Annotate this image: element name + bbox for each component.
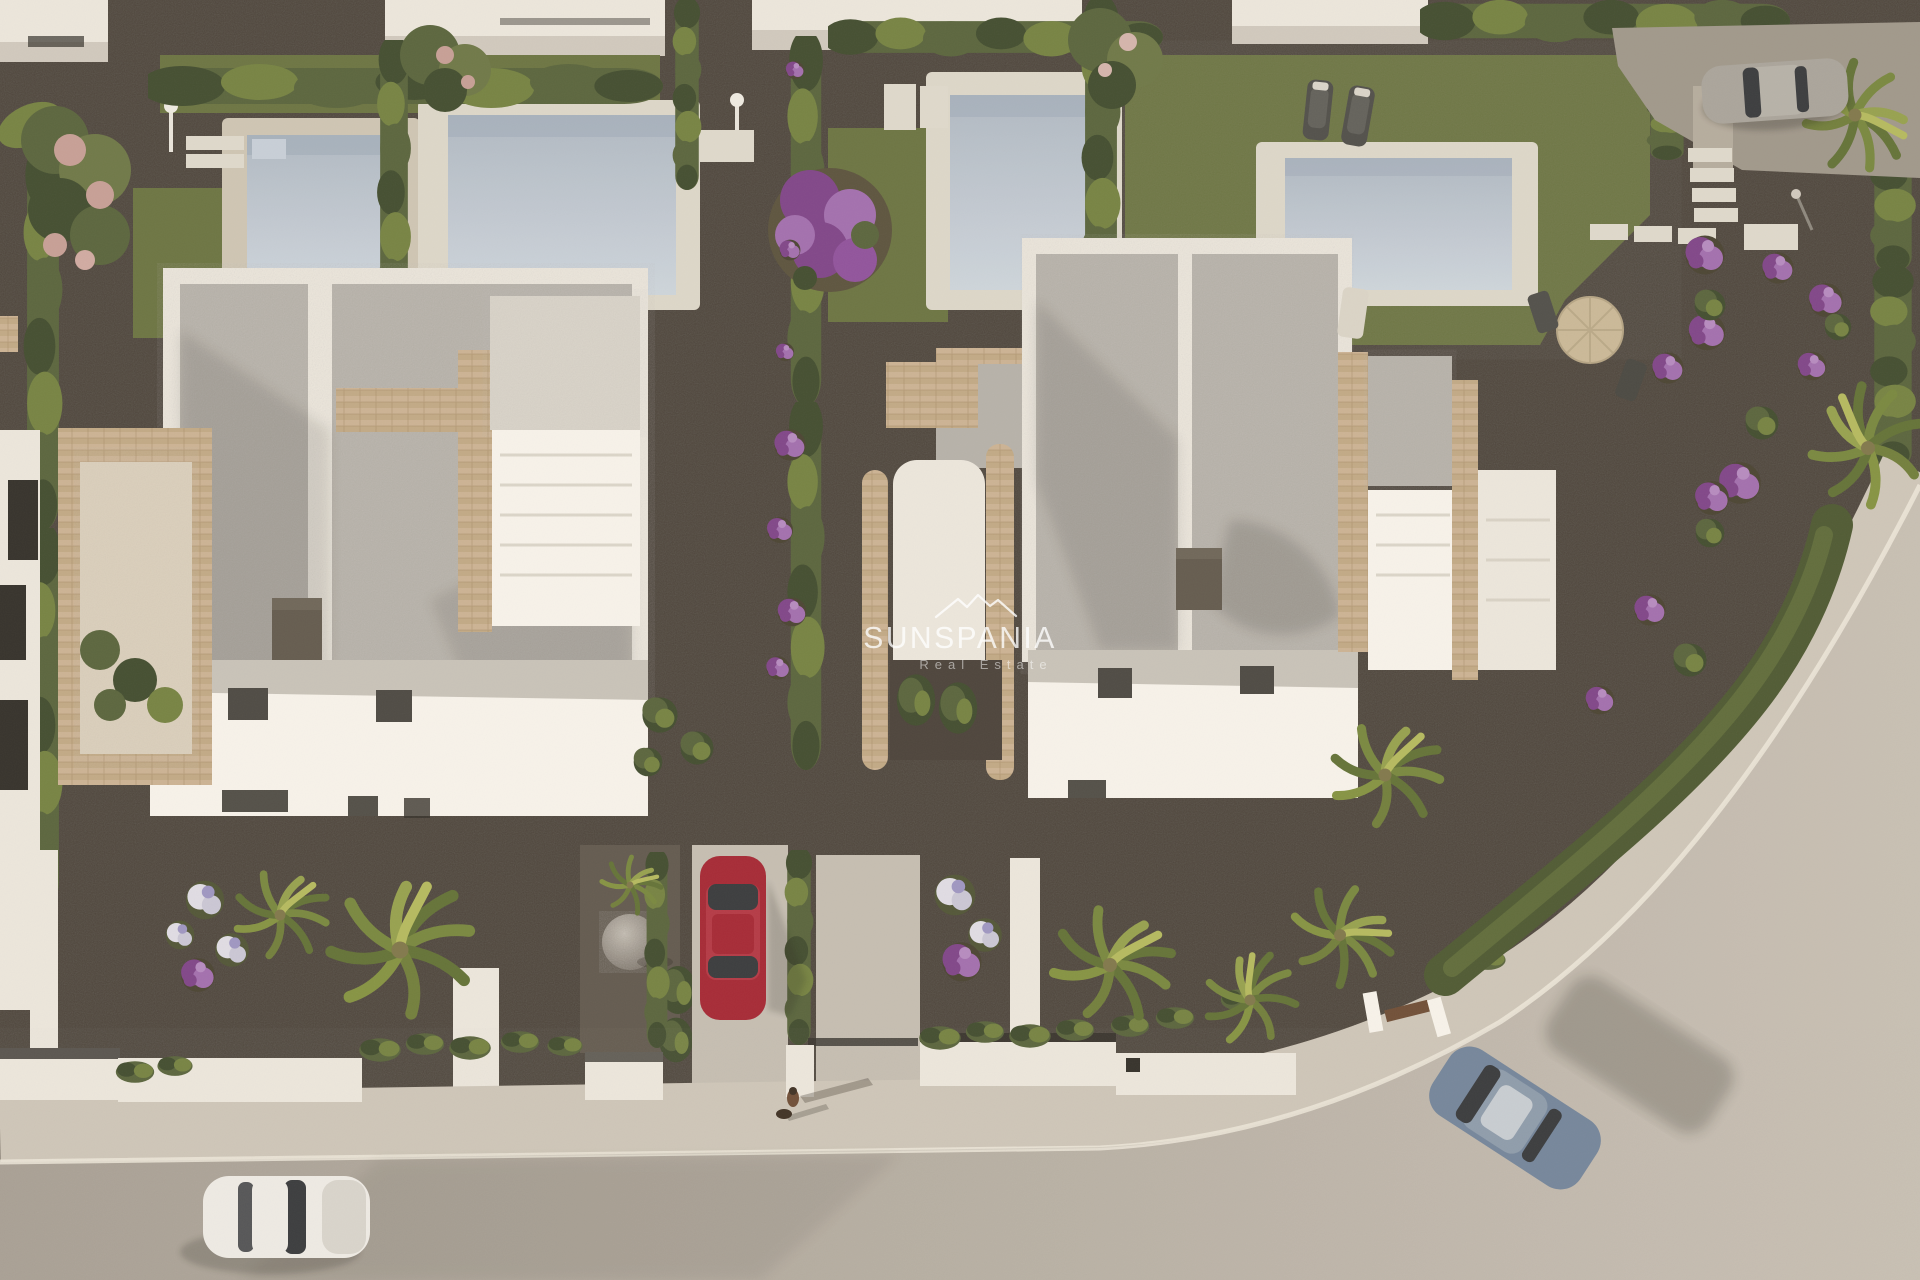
- aerial-scene: [0, 0, 1920, 1280]
- render-canvas: SUNSPANIA Real Estate: [0, 0, 1920, 1280]
